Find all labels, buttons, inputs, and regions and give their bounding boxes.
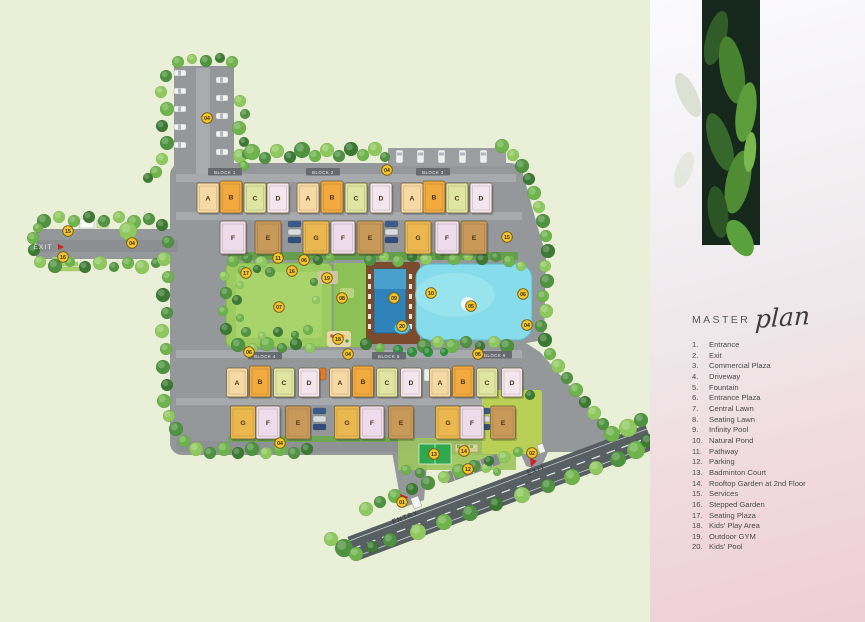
map-marker-17: 17 [241, 268, 252, 279]
building-a: A [401, 183, 425, 215]
legend-item-number: 5. [692, 383, 709, 394]
building-b: B [321, 181, 345, 215]
legend-item-label: Exit [709, 351, 722, 362]
legend-item-number: 19. [692, 532, 709, 543]
svg-text:BLOCK 3: BLOCK 3 [422, 170, 444, 175]
building-letter: B [432, 195, 437, 202]
legend-item-number: 20. [692, 542, 709, 553]
legend-item-number: 12. [692, 457, 709, 468]
svg-text:04: 04 [524, 323, 530, 329]
legend-item: 17.Seating Plaza [692, 511, 857, 522]
legend-item-label: Stepped Garden [709, 500, 765, 511]
building-letter: E [368, 235, 373, 242]
building-f: F [220, 221, 248, 256]
legend-item-label: Kids' Pool [709, 542, 743, 553]
map-marker-11: 11 [273, 253, 284, 264]
building-f: F [360, 406, 386, 441]
building-d: D [401, 368, 424, 399]
building-c: C [345, 183, 369, 215]
map-marker-04: 04 [127, 238, 138, 249]
building-d: D [470, 183, 494, 215]
legend-item-label: Seating Lawn [709, 415, 755, 426]
legend-item-number: 10. [692, 436, 709, 447]
legend-item-label: Entrance [709, 340, 739, 351]
legend-item: 19.Outdoor GYM [692, 532, 857, 543]
map-marker-06: 06 [299, 255, 310, 266]
site-plan-drawing: ABCDABCDABCDFEGFEGFEABCDABCDABCDGFEGFEGF… [0, 0, 650, 622]
building-b: B [220, 181, 244, 215]
block-label: BLOCK 5 [372, 352, 406, 360]
building-letter: C [485, 380, 490, 387]
svg-text:08: 08 [339, 296, 345, 302]
building-d: D [299, 368, 322, 399]
building-d: D [502, 368, 525, 399]
legend-item-label: Natural Pond [709, 436, 753, 447]
map-marker-09: 09 [389, 293, 400, 304]
svg-text:15: 15 [65, 229, 71, 235]
svg-text:04: 04 [204, 116, 210, 122]
building-e: E [255, 221, 283, 256]
legend-item-number: 2. [692, 351, 709, 362]
legend-item-number: 16. [692, 500, 709, 511]
svg-text:06: 06 [246, 350, 252, 356]
map-marker-04: 04 [522, 320, 533, 331]
building-d: D [267, 183, 291, 215]
legend-item-label: Commercial Plaza [709, 361, 771, 372]
building-letter: D [409, 380, 414, 387]
map-marker-04: 04 [202, 113, 213, 124]
block-label: BLOCK 3 [416, 168, 450, 176]
map-marker-20: 20 [397, 321, 408, 332]
svg-text:14: 14 [461, 449, 467, 455]
legend-item: 7.Central Lawn [692, 404, 857, 415]
building-b: B [453, 366, 476, 399]
legend-item-label: Fountain [709, 383, 739, 394]
building-a: A [330, 368, 353, 399]
building-letter: A [206, 196, 211, 203]
map-marker-08: 08 [337, 293, 348, 304]
legend-item-label: Kids' Play Area [709, 521, 760, 532]
legend-item-label: Outdoor GYM [709, 532, 756, 543]
svg-text:04: 04 [345, 352, 351, 358]
legend-item-label: Parking [709, 457, 735, 468]
building-letter: E [296, 420, 301, 427]
legend-item-label: Seating Plaza [709, 511, 756, 522]
svg-text:04: 04 [384, 168, 390, 174]
legend-item-label: Driveway [709, 372, 740, 383]
building-c: C [477, 368, 500, 399]
building-c: C [244, 183, 268, 215]
svg-text:15: 15 [504, 235, 510, 241]
building-c: C [274, 368, 297, 399]
building-e: E [286, 406, 313, 441]
legend-item-label: Entrance Plaza [709, 393, 761, 404]
building-letter: B [229, 195, 234, 202]
svg-text:12: 12 [465, 467, 471, 473]
legend-item-number: 1. [692, 340, 709, 351]
svg-text:06: 06 [475, 352, 481, 358]
road-label-exit: EXIT [33, 244, 52, 251]
building-letter: G [445, 420, 450, 427]
building-f: F [435, 221, 461, 256]
svg-text:04: 04 [277, 441, 283, 447]
legend-item-number: 15. [692, 489, 709, 500]
info-panel: MASTER plan 1.Entrance2.Exit3.Commercial… [650, 0, 865, 622]
legend-item: 14.Rooftop Garden at 2nd Floor [692, 479, 857, 490]
legend-item: 6.Entrance Plaza [692, 393, 857, 404]
svg-text:18: 18 [335, 337, 341, 343]
building-letter: F [266, 420, 270, 427]
legend-item-number: 7. [692, 404, 709, 415]
legend-item-label: Pathway [709, 447, 738, 458]
svg-text:20: 20 [399, 324, 405, 330]
svg-text:BLOCK 4: BLOCK 4 [254, 354, 276, 359]
legend-item-number: 11. [692, 447, 709, 458]
building-f: F [460, 406, 486, 441]
building-b: B [423, 181, 447, 215]
plan-title-script: plan [755, 301, 811, 334]
svg-text:16: 16 [289, 269, 295, 275]
svg-text:06: 06 [520, 292, 526, 298]
building-a: A [197, 183, 221, 215]
legend-item: 4.Driveway [692, 372, 857, 383]
building-letter: D [479, 196, 484, 203]
building-letter: C [253, 196, 258, 203]
building-letter: A [438, 380, 443, 387]
plant-photo [650, 0, 865, 300]
svg-text:BLOCK 6: BLOCK 6 [484, 353, 506, 358]
svg-text:11: 11 [275, 256, 281, 262]
map-marker-06: 06 [473, 349, 484, 360]
building-letter: F [445, 235, 449, 242]
legend-item: 5.Fountain [692, 383, 857, 394]
building-letter: D [510, 380, 515, 387]
svg-text:BLOCK 1: BLOCK 1 [214, 170, 236, 175]
building-letter: A [306, 196, 311, 203]
building-e: E [357, 221, 385, 256]
building-letter: B [361, 379, 366, 386]
legend-item: 16.Stepped Garden [692, 500, 857, 511]
building-letter: G [344, 420, 349, 427]
building-letter: E [472, 235, 477, 242]
building-g: G [436, 406, 463, 441]
building-letter: G [415, 235, 420, 242]
svg-text:BLOCK 2: BLOCK 2 [312, 170, 334, 175]
building-a: A [297, 183, 321, 215]
building-f: F [256, 406, 282, 441]
legend-item-number: 8. [692, 415, 709, 426]
legend-item: 3.Commercial Plaza [692, 361, 857, 372]
legend-item: 15.Services [692, 489, 857, 500]
map-marker-15: 15 [63, 226, 74, 237]
legend-item-number: 9. [692, 425, 709, 436]
svg-text:13: 13 [431, 452, 437, 458]
building-g: G [231, 406, 258, 441]
building-letter: D [307, 380, 312, 387]
map-marker-12: 12 [463, 464, 474, 475]
legend-item: 13.Badminton Court [692, 468, 857, 479]
map-marker-14: 14 [459, 446, 470, 457]
map-marker-15: 15 [502, 232, 513, 243]
svg-text:17: 17 [243, 271, 249, 277]
building-letter: A [235, 380, 240, 387]
legend-item: 10.Natural Pond [692, 436, 857, 447]
building-letter: C [455, 196, 460, 203]
building-letter: B [330, 195, 335, 202]
legend-item-number: 13. [692, 468, 709, 479]
map-marker-02: 02 [527, 448, 538, 459]
building-g: G [405, 221, 433, 256]
svg-text:16: 16 [60, 255, 66, 261]
building-letter: C [282, 380, 287, 387]
map-marker-06: 06 [518, 289, 529, 300]
building-letter: E [399, 420, 404, 427]
svg-text:02: 02 [529, 451, 535, 457]
building-e: E [491, 406, 518, 441]
building-letter: G [240, 420, 245, 427]
map-marker-04: 04 [343, 349, 354, 360]
building-e: E [389, 406, 416, 441]
legend-item-number: 14. [692, 479, 709, 490]
master-title-text: MASTER [692, 314, 750, 326]
block-label: BLOCK 1 [208, 168, 242, 176]
building-g: G [335, 406, 362, 441]
legend-item: 1.Entrance [692, 340, 857, 351]
building-letter: F [470, 420, 474, 427]
building-letter: C [354, 196, 359, 203]
svg-text:09: 09 [391, 296, 397, 302]
building-letter: F [341, 235, 345, 242]
svg-text:05: 05 [468, 304, 474, 310]
legend-list: 1.Entrance2.Exit3.Commercial Plaza4.Driv… [692, 340, 857, 553]
building-letter: G [313, 235, 318, 242]
legend-item: 12.Parking [692, 457, 857, 468]
map-marker-01: 01 [397, 497, 408, 508]
legend-item-number: 6. [692, 393, 709, 404]
legend-item-number: 3. [692, 361, 709, 372]
map-marker-16: 16 [58, 252, 69, 263]
legend-item-label: Badminton Court [709, 468, 766, 479]
svg-text:19: 19 [324, 276, 330, 282]
map-marker-04: 04 [382, 165, 393, 176]
svg-text:01: 01 [399, 500, 405, 506]
building-letter: F [370, 420, 374, 427]
map-marker-19: 19 [322, 273, 333, 284]
building-letter: E [501, 420, 506, 427]
legend-item: 2.Exit [692, 351, 857, 362]
building-letter: F [231, 235, 235, 242]
building-letter: A [338, 380, 343, 387]
map-marker-04: 04 [275, 438, 286, 449]
legend-item: 8.Seating Lawn [692, 415, 857, 426]
building-letter: B [461, 379, 466, 386]
building-b: B [250, 366, 273, 399]
legend-item-label: Infinity Pool [709, 425, 748, 436]
building-letter: D [379, 196, 384, 203]
building-f: F [331, 221, 357, 256]
building-letter: E [266, 235, 271, 242]
legend-item-label: Rooftop Garden at 2nd Floor [709, 479, 806, 490]
map-marker-18: 18 [333, 334, 344, 345]
map-marker-07: 07 [274, 302, 285, 313]
building-d: D [370, 183, 394, 215]
legend-item-label: Central Lawn [709, 404, 754, 415]
map-marker-06: 06 [244, 347, 255, 358]
building-b: B [353, 366, 376, 399]
svg-text:BLOCK 5: BLOCK 5 [378, 354, 400, 359]
master-plan-map: ABCDABCDABCDFEGFEGFEABCDABCDABCDGFEGFEGF… [0, 0, 650, 622]
map-marker-05: 05 [466, 301, 477, 312]
svg-text:04: 04 [129, 241, 135, 247]
building-g: G [303, 221, 331, 256]
building-e: E [461, 221, 489, 256]
building-a: A [430, 368, 453, 399]
block-label: BLOCK 2 [306, 168, 340, 176]
building-a: A [227, 368, 250, 399]
legend-item-number: 4. [692, 372, 709, 383]
building-letter: C [385, 380, 390, 387]
building-c: C [377, 368, 400, 399]
svg-text:06: 06 [301, 258, 307, 264]
legend-item-number: 17. [692, 511, 709, 522]
building-letter: D [276, 196, 281, 203]
map-marker-16: 16 [287, 266, 298, 277]
building-letter: B [258, 379, 263, 386]
building-c: C [446, 183, 470, 215]
svg-text:07: 07 [276, 305, 282, 311]
legend-item: 20.Kids' Pool [692, 542, 857, 553]
map-marker-10: 10 [426, 288, 437, 299]
legend-item-label: Services [709, 489, 738, 500]
panel-title: MASTER plan [692, 300, 810, 329]
svg-text:10: 10 [428, 291, 434, 297]
legend-item: 11.Pathway [692, 447, 857, 458]
legend-item: 18.Kids' Play Area [692, 521, 857, 532]
legend-item: 9.Infinity Pool [692, 425, 857, 436]
legend-item-number: 18. [692, 521, 709, 532]
map-marker-13: 13 [429, 449, 440, 460]
building-letter: A [410, 196, 415, 203]
